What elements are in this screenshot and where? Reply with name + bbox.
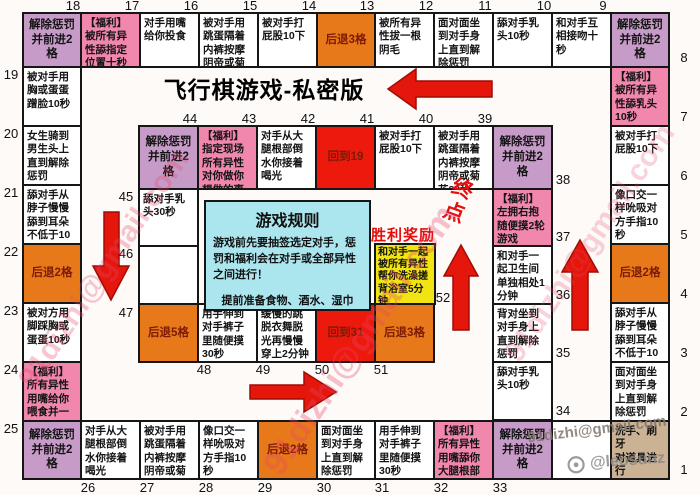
cell-number-17: 17 <box>125 0 139 12</box>
cell-number-6: 6 <box>680 169 687 182</box>
board-cell-4: 后退2格 <box>610 243 670 304</box>
cell-number-15: 15 <box>243 0 257 12</box>
board-cell-21: 舔对手从脖子慢慢舔到耳朵不低于10秒 <box>22 184 82 245</box>
arrow-left-icon <box>388 69 492 109</box>
board-cell-22: 后退2格 <box>22 243 82 304</box>
cell-number-23: 23 <box>4 304 18 317</box>
cell-number-37: 37 <box>556 230 570 243</box>
board-cell-20: 女生骑到男生头上直到解除惩罚 <box>22 125 82 186</box>
cell-number-14: 14 <box>302 0 316 12</box>
cell-number-19: 19 <box>4 68 18 81</box>
cell-number-39: 39 <box>478 112 492 125</box>
board-cell-3: 舔对手从脖子慢慢舔到耳朵不低于10秒 <box>610 302 670 363</box>
cell-number-41: 41 <box>360 112 374 125</box>
board-cell-35: 背对坐到对手身上直到解除惩罚 <box>492 303 553 363</box>
cell-number-33: 33 <box>493 481 507 494</box>
cell-number-50: 50 <box>315 363 329 376</box>
board-cell-17: 【福利】被所有异性舔指定位置十秒 <box>80 12 141 68</box>
cell-number-9: 9 <box>599 0 606 12</box>
cell-number-3: 3 <box>680 346 687 359</box>
cell-number-49: 49 <box>256 363 270 376</box>
board-cell-47: 后退5格 <box>138 303 199 363</box>
cell-number-20: 20 <box>4 127 18 140</box>
cell-number-30: 30 <box>317 481 331 494</box>
cell-number-43: 43 <box>242 112 256 125</box>
game-title: 飞行棋游戏-私密版 <box>134 70 394 106</box>
cell-number-13: 13 <box>360 0 374 12</box>
board-cell-51: 后退3格 <box>374 303 435 363</box>
board-cell-46 <box>138 245 199 305</box>
rules-body: 游戏前先要抽签选定对手，惩罚和福利会在对手或全部异性之间进行！ <box>213 236 362 284</box>
board-cell-14: 被对手打屁股10下 <box>257 12 318 68</box>
cell-number-4: 4 <box>680 287 687 300</box>
board-cell-6: 被对手打屁股10下 <box>610 125 670 186</box>
cell-number-2: 2 <box>680 405 687 418</box>
board-cell-50: 回到31 <box>315 303 376 363</box>
board-cell-41: 回到19 <box>315 125 376 190</box>
board-cell <box>551 420 612 480</box>
cell-number-44: 44 <box>183 112 197 125</box>
cell-number-48: 48 <box>197 363 211 376</box>
board-cell-48: 用手伸到对手裤子里随便摸30秒 <box>197 303 258 363</box>
cell-number-34: 34 <box>556 404 570 417</box>
victory-title: 胜利奖励 <box>371 224 435 245</box>
victory-reward-cell: 和对手一起被所有异性帮你洗澡搓背浴室5分钟 <box>374 243 436 305</box>
board-cell-44: 解除惩罚 并前进2格 <box>138 125 199 190</box>
board-cell-36: 和对手一起卫生间单独相处1分钟 <box>492 245 553 305</box>
cell-number-46: 46 <box>119 247 133 260</box>
cell-number-35: 35 <box>556 346 570 359</box>
board-cell-10: 舔对手乳头10秒 <box>492 12 553 68</box>
cell-number-28: 28 <box>199 481 213 494</box>
board-cell-28: 像口交一样吮吸对方手指10秒 <box>198 420 259 480</box>
board-cell-8: 解除惩罚 并前进2格 <box>610 12 670 68</box>
board-cell-27: 被对手用跳蛋隔着内裤按摩阴帝或菊花30秒 <box>139 420 200 480</box>
cell-number-51: 51 <box>374 363 388 376</box>
board-cell-49: 缓慢的跳脱衣舞脱光再慢慢穿上2分钟内 <box>256 303 317 363</box>
cell-number-31: 31 <box>375 481 389 494</box>
board-cell-19: 被对手用胸或蛋蛋蹭脸10秒 <box>22 66 82 127</box>
board-cell-37: 【福利】左拥右抱随便摸2轮游戏 <box>492 188 553 247</box>
cell-number-7: 7 <box>680 110 687 123</box>
cell-number-1: 1 <box>680 463 687 476</box>
board-cell-5: 像口交一样吮吸对方手指10秒 <box>610 184 670 245</box>
cell-number-25: 25 <box>4 422 18 435</box>
cell-number-8: 8 <box>680 51 687 64</box>
rules-box: 游戏规则 游戏前先要抽签选定对手，惩罚和福利会在对手或全部异性之间进行！ 提前准… <box>204 200 371 311</box>
cell-number-36: 36 <box>556 288 570 301</box>
board-cell-11: 面对面坐到对手身上直到解除惩罚 <box>433 12 494 68</box>
board-cell-43: 【福利】指定现场所有异性对你做你想做的事 <box>197 125 258 190</box>
cell-number-5: 5 <box>680 228 687 241</box>
cell-number-27: 27 <box>140 481 154 494</box>
board-cell-32: 【福利】所有异性用嘴舔你大腿根部30秒 <box>433 420 494 480</box>
arrow-up-right-icon <box>562 240 598 330</box>
board-cell-33: 解除惩罚 并前进2格 <box>492 420 553 480</box>
board-cell-18: 解除惩罚 并前进2格 <box>22 12 82 68</box>
board-cell-38: 解除惩罚 并前进2格 <box>492 125 553 190</box>
cell-number-24: 24 <box>4 363 18 376</box>
board: 解除惩罚 并前进2格18【福利】被所有异性舔指定位置十秒17对手用嘴给你投食16… <box>0 0 700 495</box>
board-cell-16: 对手用嘴给你投食 <box>139 12 200 68</box>
board-cell-42: 对手从大腿根部倒水你接着喝光 <box>256 125 317 190</box>
board-cell-7: 【福利】被所有异性舔乳头10秒 <box>610 66 670 127</box>
board-cell-1: 洗手、刷牙 对道具进行 消毒 <box>610 420 670 480</box>
board-cell-31: 用手伸到对手裤子里随便摸30秒 <box>374 420 435 480</box>
board-cell-45: 舔对手乳头30秒 <box>138 188 199 247</box>
board-cell-9: 和对手互相接吻十秒 <box>551 12 612 68</box>
board-cell-2: 面对面坐到对手身上直到解除惩罚 <box>610 361 670 422</box>
cell-number-29: 29 <box>258 481 272 494</box>
board-cell-23: 被对方用脚踩胸或蛋蛋10秒 <box>22 302 82 363</box>
board-cell-29: 后退2格 <box>257 420 318 480</box>
cell-number-11: 11 <box>478 0 492 12</box>
cell-number-52: 52 <box>436 291 450 304</box>
cell-number-22: 22 <box>4 245 18 258</box>
rules-title: 游戏规则 <box>213 207 362 231</box>
rules-note: 提前准备食物、酒水、湿巾 <box>213 292 362 308</box>
board-cell-25: 解除惩罚 并前进2格 <box>22 420 82 480</box>
cell-number-40: 40 <box>419 112 433 125</box>
cell-number-26: 26 <box>81 481 95 494</box>
cell-number-42: 42 <box>301 112 315 125</box>
cell-number-12: 12 <box>419 0 433 12</box>
board-cell-30: 面对面坐到对手身上直到解除惩罚 <box>316 420 376 480</box>
board-cell-13: 后退3格 <box>316 12 376 68</box>
cell-number-21: 21 <box>4 186 18 199</box>
cell-number-32: 32 <box>434 481 448 494</box>
board-cell-12: 被所有异性拔一根阴毛 <box>374 12 435 68</box>
board-cell-24: 【福利】所有异性用嘴给你喂食并一起亲吻你 <box>22 361 82 422</box>
cell-number-10: 10 <box>537 0 551 12</box>
cell-number-47: 47 <box>119 306 133 319</box>
arrow-right-icon <box>250 372 336 412</box>
cell-number-38: 38 <box>556 173 570 186</box>
arrow-up-finish-icon <box>444 245 478 330</box>
cell-number-45: 45 <box>119 190 133 203</box>
cell-number-18: 18 <box>66 0 80 12</box>
board-cell-40: 被对手打屁股10下 <box>374 125 435 190</box>
board-cell-34: 舔对手乳头10秒 <box>492 361 553 421</box>
board-cell-26: 对手从大腿根部倒水你接着喝光 <box>80 420 141 480</box>
board-cell-15: 被对手用跳蛋隔着内裤按摩阴帝或菊花30秒 <box>198 12 259 68</box>
cell-number-16: 16 <box>184 0 198 12</box>
